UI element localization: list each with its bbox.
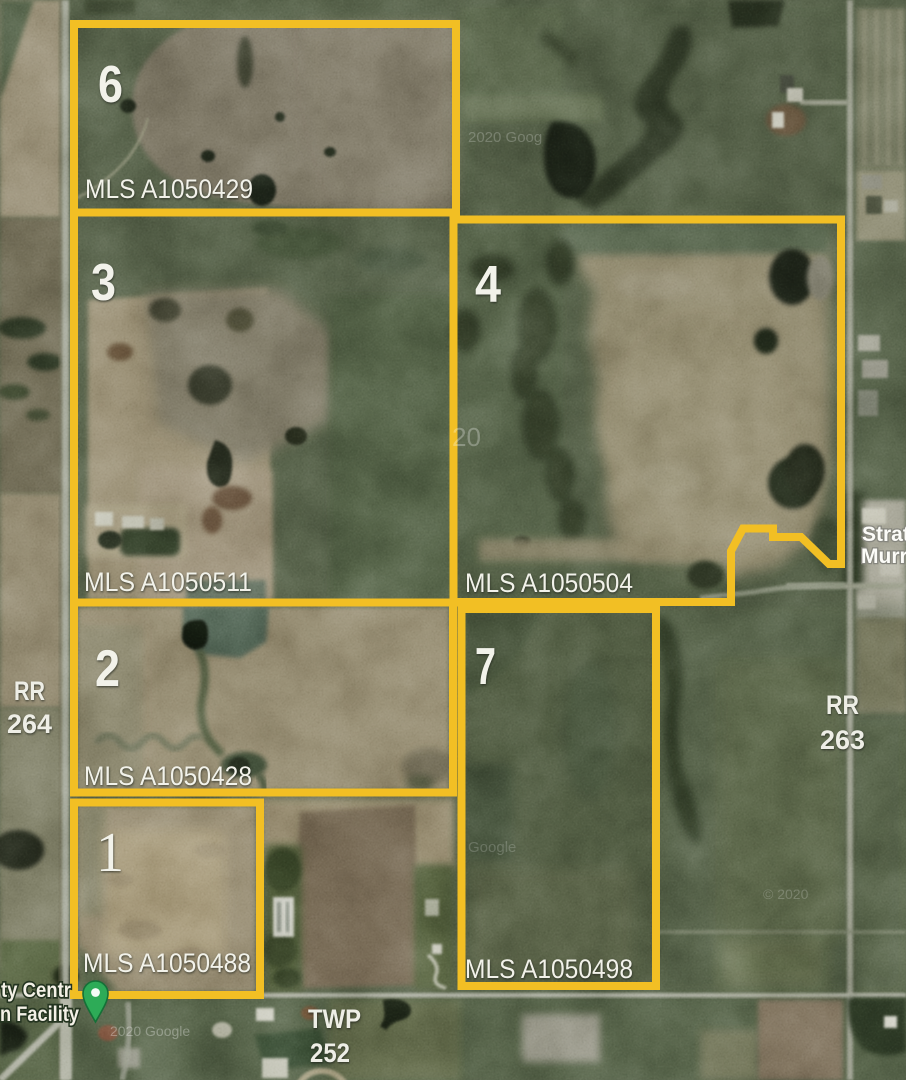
svg-text:MLS A1050511: MLS A1050511 bbox=[84, 567, 252, 597]
svg-text:263: 263 bbox=[820, 725, 865, 755]
svg-text:2020 Goog: 2020 Goog bbox=[468, 129, 542, 146]
svg-text:RR: RR bbox=[14, 676, 45, 706]
svg-text:ty Centr: ty Centr bbox=[1, 979, 71, 1002]
svg-text:MLS A1050488: MLS A1050488 bbox=[83, 948, 251, 978]
svg-text:MLS A1050504: MLS A1050504 bbox=[465, 568, 633, 598]
svg-text:20: 20 bbox=[452, 422, 481, 452]
svg-text:3: 3 bbox=[91, 254, 116, 312]
svg-text:n Facility: n Facility bbox=[0, 1003, 79, 1026]
svg-text:Google: Google bbox=[468, 839, 516, 856]
svg-text:4: 4 bbox=[475, 256, 501, 314]
svg-text:Murr: Murr bbox=[861, 545, 906, 568]
svg-text:MLS A1050498: MLS A1050498 bbox=[465, 954, 633, 984]
svg-text:6: 6 bbox=[98, 56, 123, 114]
svg-text:TWP: TWP bbox=[308, 1004, 361, 1034]
svg-text:MLS A1050428: MLS A1050428 bbox=[84, 761, 252, 791]
svg-text:MLS A1050429: MLS A1050429 bbox=[85, 174, 253, 204]
svg-text:2: 2 bbox=[95, 640, 120, 698]
svg-text:252: 252 bbox=[310, 1038, 350, 1068]
svg-text:7: 7 bbox=[475, 638, 496, 696]
svg-text:2020 Google: 2020 Google bbox=[110, 1023, 190, 1039]
svg-text:264: 264 bbox=[7, 709, 52, 739]
svg-text:Strat: Strat bbox=[862, 523, 906, 546]
svg-text:RR: RR bbox=[826, 690, 859, 720]
svg-text:1: 1 bbox=[96, 822, 124, 884]
svg-text:© 2020: © 2020 bbox=[763, 886, 809, 902]
